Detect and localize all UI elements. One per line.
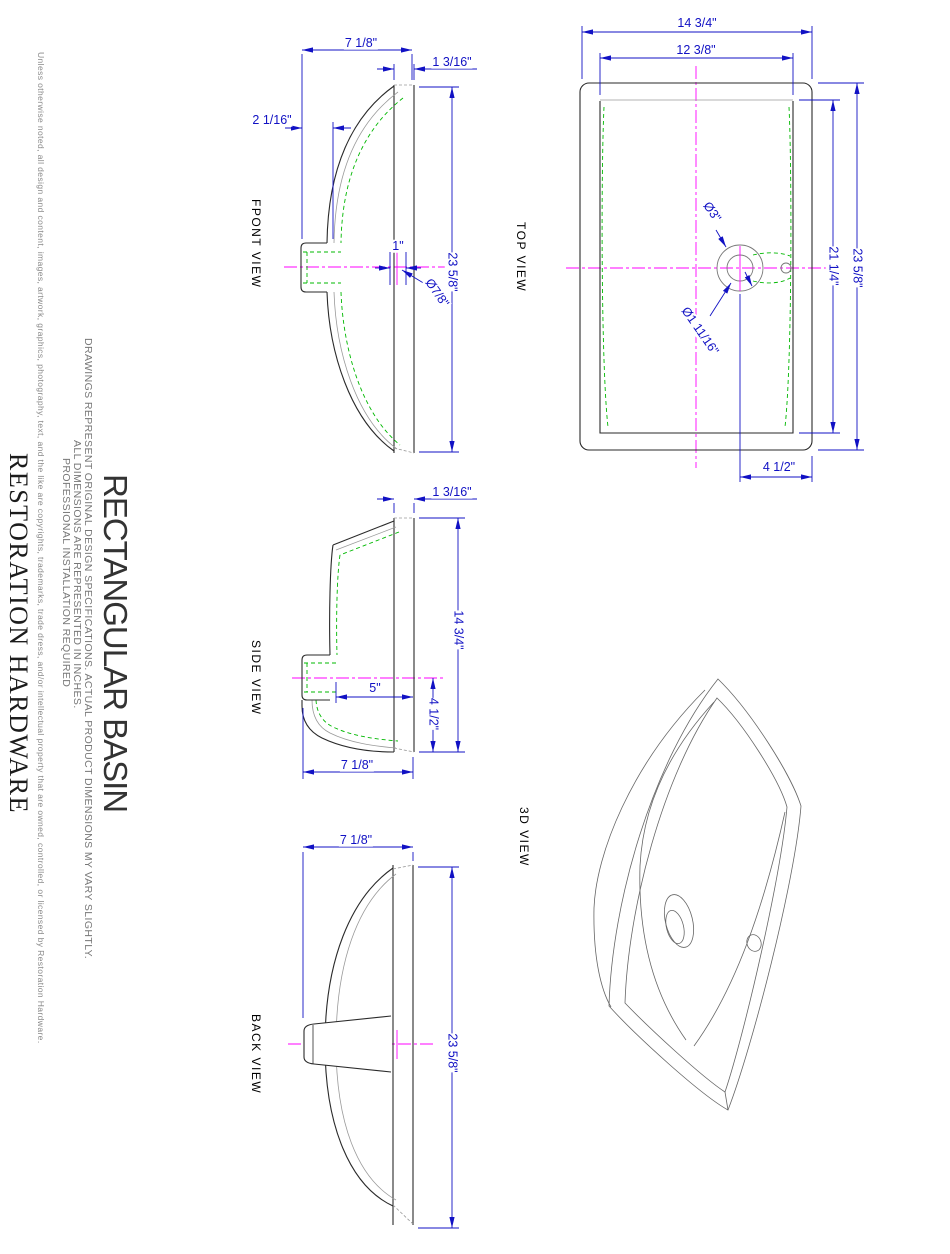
- company-logo-text: RESTORATION HARDWARE: [3, 453, 33, 814]
- back-view-drawing: [288, 847, 459, 1228]
- side-view-drawing: [292, 499, 477, 779]
- back-view-label: BACK VIEW: [249, 1014, 263, 1094]
- dim-back-depth: 7 1/8": [339, 834, 373, 847]
- dim-front-depth: 7 1/8": [344, 37, 378, 50]
- spec-sheet-page: RESTORATION HARDWARE Unless otherwise no…: [0, 0, 950, 1254]
- three-d-view-drawing: [594, 679, 801, 1110]
- page-title: RECTANGULAR BASIN: [96, 474, 134, 812]
- dim-front-drain-rim-width: 1": [391, 240, 404, 253]
- dim-side-rim-thickness: 1 3/16": [431, 486, 472, 499]
- dim-top-outer-length: 23 5/8": [850, 248, 865, 287]
- dim-top-faucet-offset: 4 1/2": [762, 461, 796, 474]
- top-view-drawing: [566, 26, 864, 482]
- dim-front-length: 23 5/8": [445, 252, 460, 291]
- side-view-label: SIDE VIEW: [249, 640, 263, 716]
- dim-front-drain-stub-width: 2 1/16": [251, 114, 292, 127]
- dim-top-inner-length: 21 1/4": [826, 246, 841, 285]
- drawing-canvas: [0, 0, 950, 1254]
- dim-side-width: 14 3/4": [451, 610, 466, 649]
- dim-back-length: 23 5/8": [445, 1033, 460, 1072]
- front-view-label: FPONT VIEW: [249, 199, 263, 288]
- note-specifications: DRAWINGS REPRESENT ORIGINAL DESIGN SPECI…: [82, 338, 94, 959]
- dim-top-inner-width: 12 3/8": [675, 44, 716, 57]
- copyright-line: Unless otherwise noted, all design and c…: [36, 52, 46, 1044]
- dim-side-center-to-bottom: 4 1/2": [426, 698, 441, 730]
- dim-side-bowl-inner: 5": [368, 682, 381, 695]
- top-view-label: TOP VIEW: [514, 222, 528, 292]
- three-d-view-label: 3D VIEW: [517, 807, 531, 867]
- dim-front-rim-thickness: 1 3/16": [431, 56, 472, 69]
- dim-top-outer-width: 14 3/4": [676, 17, 717, 30]
- dim-side-depth: 7 1/8": [340, 759, 374, 772]
